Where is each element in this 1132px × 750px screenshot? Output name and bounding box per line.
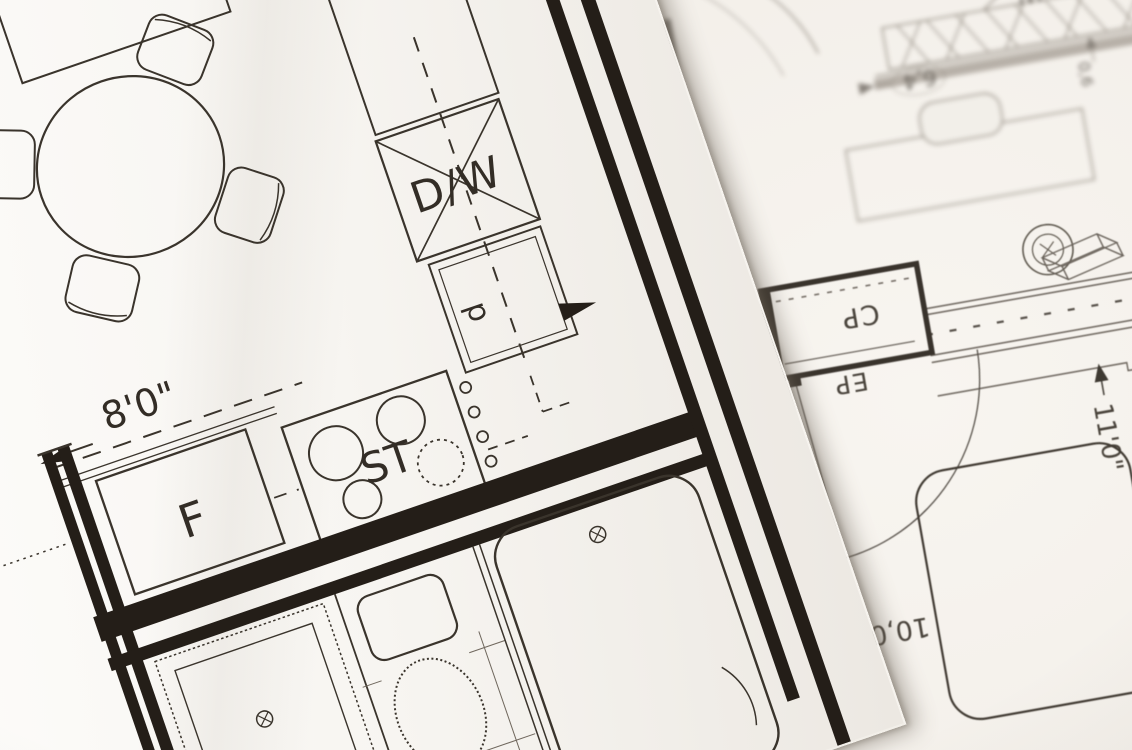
desk-chair: [917, 91, 1005, 147]
stove-burner: [412, 433, 470, 491]
wall-band-dashes: [931, 263, 1132, 334]
toilet: [350, 570, 506, 750]
dining-table: [12, 51, 248, 282]
toilet-bowl: [377, 644, 503, 750]
dishwasher-label: D/W: [404, 147, 508, 225]
shower-drain-icon: [254, 709, 274, 729]
sideboard: [0, 0, 230, 83]
tub-divider-lines: [473, 544, 580, 750]
dimension-0-6: 0,6: [1074, 60, 1097, 88]
letter-w: W: [1015, 0, 1043, 10]
tub-drain-icon: [588, 524, 608, 544]
dimension-8-0-label: 8'0": [96, 373, 182, 439]
ep-label: EP: [831, 366, 870, 401]
rug-outline: [911, 438, 1132, 724]
bath-divider-line: [335, 594, 435, 750]
wall-band-lines: [922, 236, 1132, 362]
floor-tile-lines: [358, 624, 573, 750]
stove-label: ST: [354, 431, 420, 494]
dining-chairs: [0, 0, 315, 358]
dim-arrow-up-icon: [1092, 362, 1109, 382]
blueprint-photo: W O 6,4 0,6 d 0,9: [0, 0, 1132, 750]
dishwasher: D/W: [376, 99, 540, 261]
door-arc-blur: [666, 0, 819, 77]
shower: [155, 604, 382, 750]
closet-rod-dashes: [774, 278, 909, 302]
fridge-label: F: [171, 490, 214, 550]
sink-cabinet: d: [429, 217, 604, 372]
dim-arrow-right-icon: [858, 80, 876, 95]
centerline-elbow: [470, 365, 579, 449]
closet-label: CP: [838, 297, 882, 334]
tub-curve-line: [722, 662, 760, 730]
wall-cabinet: [290, 0, 498, 135]
dining-chair: [63, 252, 142, 324]
dimension-6-4: 6,4: [901, 65, 938, 94]
overhead-cabinet-dashes: [53, 382, 303, 468]
dining-chair: [0, 130, 35, 199]
toilet-tank: [354, 571, 461, 664]
bathtub: [486, 467, 787, 750]
dimension-11-0: 11'0": [1080, 362, 1128, 474]
sink-label: d: [456, 298, 495, 327]
dimension-11-0-label: 11'0": [1087, 401, 1128, 474]
